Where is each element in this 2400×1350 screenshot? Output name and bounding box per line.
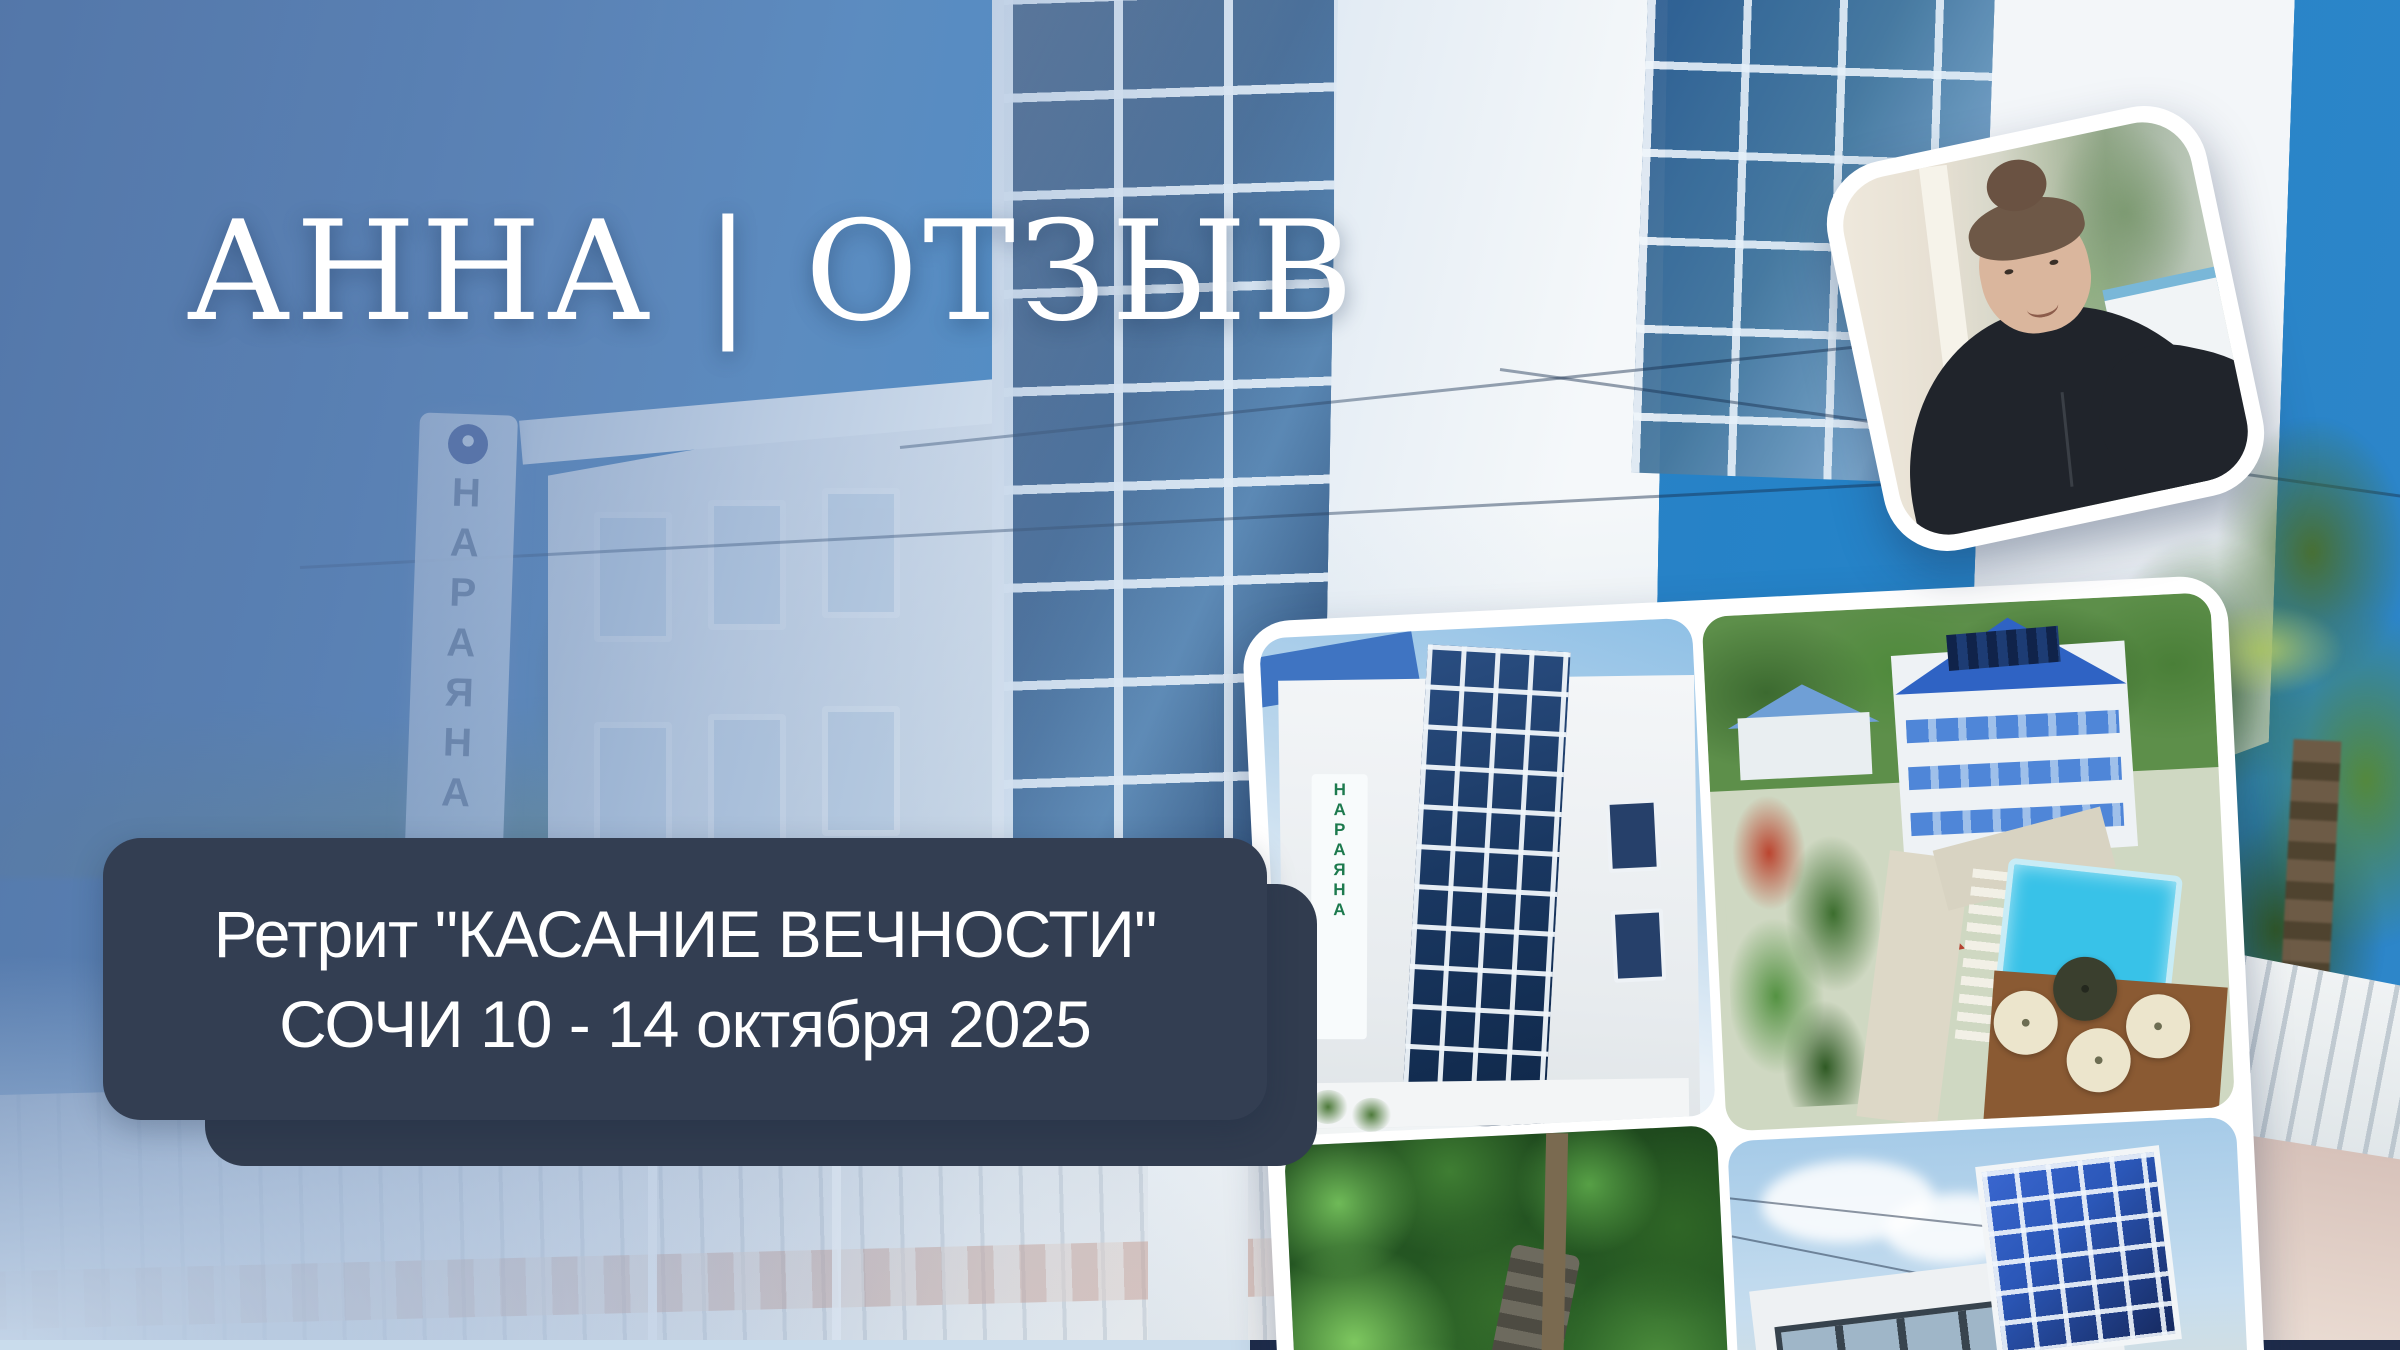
collage-photo-modern-building [1727, 1116, 2250, 1350]
banner-letter: Р [1334, 821, 1345, 841]
naryana-flag-banner: Н А Р А Я Н А [404, 412, 518, 877]
collage-right-column [1702, 592, 2251, 1350]
naryana-flag-letters: Н А Р А Я Н А [441, 468, 482, 819]
blue-glass-cube [1975, 1145, 2182, 1350]
flag-letter: Н [451, 468, 482, 519]
banner-letter: Н [1333, 881, 1345, 901]
window [708, 500, 786, 630]
window [822, 706, 900, 836]
small-house [1737, 712, 1872, 780]
banner-letter: Н [1334, 781, 1346, 801]
banner-letter: А [1334, 801, 1346, 821]
page-title: АННА | ОТЗЫВ [186, 200, 1358, 345]
reviewer-portrait-card [1815, 94, 2276, 563]
window [708, 714, 786, 844]
flag-letter: А [441, 767, 472, 818]
flag-letter: Р [449, 568, 477, 619]
collage-photo-hotel-front: Н А Р А Я Н А [1259, 618, 1716, 1137]
banner-letter: А [1333, 901, 1345, 921]
event-info-box: Ретрит "КАСАНИЕ ВЕЧНОСТИ" СОЧИ 10 - 14 о… [103, 838, 1267, 1120]
collage-photo-aerial-pool [1702, 592, 2235, 1131]
window [1605, 799, 1660, 873]
flag-letter: Н [442, 717, 473, 768]
banner-letter: Я [1333, 861, 1345, 881]
thumbnail-canvas: Н А Р А Я Н А Н А [0, 0, 2400, 1350]
bottom-strip-left [0, 1340, 1250, 1350]
lotus-circle-icon [447, 423, 488, 464]
naryana-banner-green: Н А Р А Я Н А [1311, 774, 1368, 1039]
banner-letter: А [1333, 841, 1345, 861]
window [594, 722, 672, 852]
event-date-location: СОЧИ 10 - 14 октября 2025 [279, 984, 1091, 1064]
photo-collage-card: Н А Р А Я Н А [1241, 574, 2269, 1350]
flag-letter: Я [444, 667, 474, 718]
glass-tower-small [1401, 644, 1570, 1129]
window [1611, 908, 1666, 982]
reviewer-photo [1834, 113, 2257, 544]
collage-left-column: Н А Р А Я Н А [1259, 618, 1733, 1350]
flag-letter: А [446, 618, 477, 669]
collage-photo-garden-path [1284, 1125, 1733, 1350]
window [822, 488, 900, 618]
flag-letter: А [449, 518, 480, 569]
window [594, 512, 672, 642]
event-title: Ретрит "КАСАНИЕ ВЕЧНОСТИ" [214, 894, 1157, 974]
